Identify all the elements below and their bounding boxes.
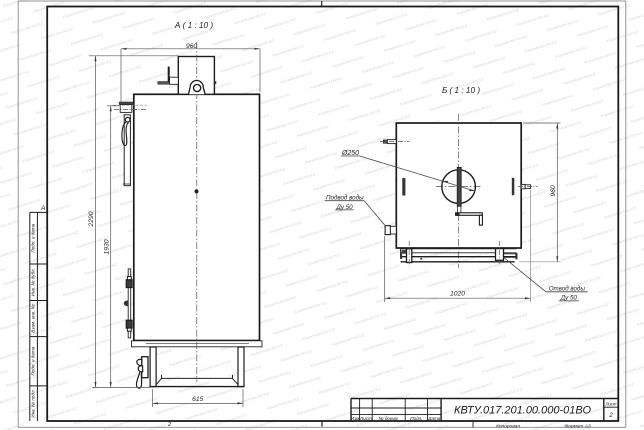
svg-text:Отвод воды: Отвод воды [549, 285, 586, 292]
svg-text:Лист: Лист [359, 416, 372, 421]
svg-text:2: 2 [608, 413, 613, 419]
svg-text:Подп. и дата: Подп. и дата [31, 346, 36, 375]
svg-text:1020: 1020 [450, 291, 465, 298]
svg-text:Дата: Дата [427, 416, 441, 421]
svg-text:Подп. и дата: Подп. и дата [31, 223, 36, 252]
svg-text:№ докум.: № докум. [379, 416, 399, 421]
svg-text:615: 615 [192, 396, 204, 403]
svg-text:Формат А3: Формат А3 [564, 424, 591, 430]
svg-text:2290: 2290 [88, 211, 95, 227]
svg-text:Копировал: Копировал [496, 424, 520, 430]
svg-text:А: А [40, 205, 45, 212]
svg-text:Лист: Лист [604, 401, 616, 406]
svg-text:А ( 1 : 10 ): А ( 1 : 10 ) [174, 21, 213, 30]
svg-text:КВТУ.017.201.00.000-01ВО: КВТУ.017.201.00.000-01ВО [454, 405, 591, 417]
svg-text:Б ( 1 : 10 ): Б ( 1 : 10 ) [442, 86, 480, 95]
svg-text:2: 2 [167, 422, 171, 428]
svg-text:960: 960 [550, 185, 557, 197]
svg-text:Изм: Изм [351, 416, 360, 421]
svg-text:Подп.: Подп. [410, 416, 422, 421]
svg-text:960: 960 [186, 43, 198, 50]
svg-text:Инв. № подл.: Инв. № подл. [31, 389, 36, 418]
svg-text:1930: 1930 [103, 239, 110, 254]
svg-text:Инв. № дубл.: Инв. № дубл. [31, 268, 36, 296]
svg-text:Взам. инв. №: Взам. инв. № [31, 304, 36, 332]
